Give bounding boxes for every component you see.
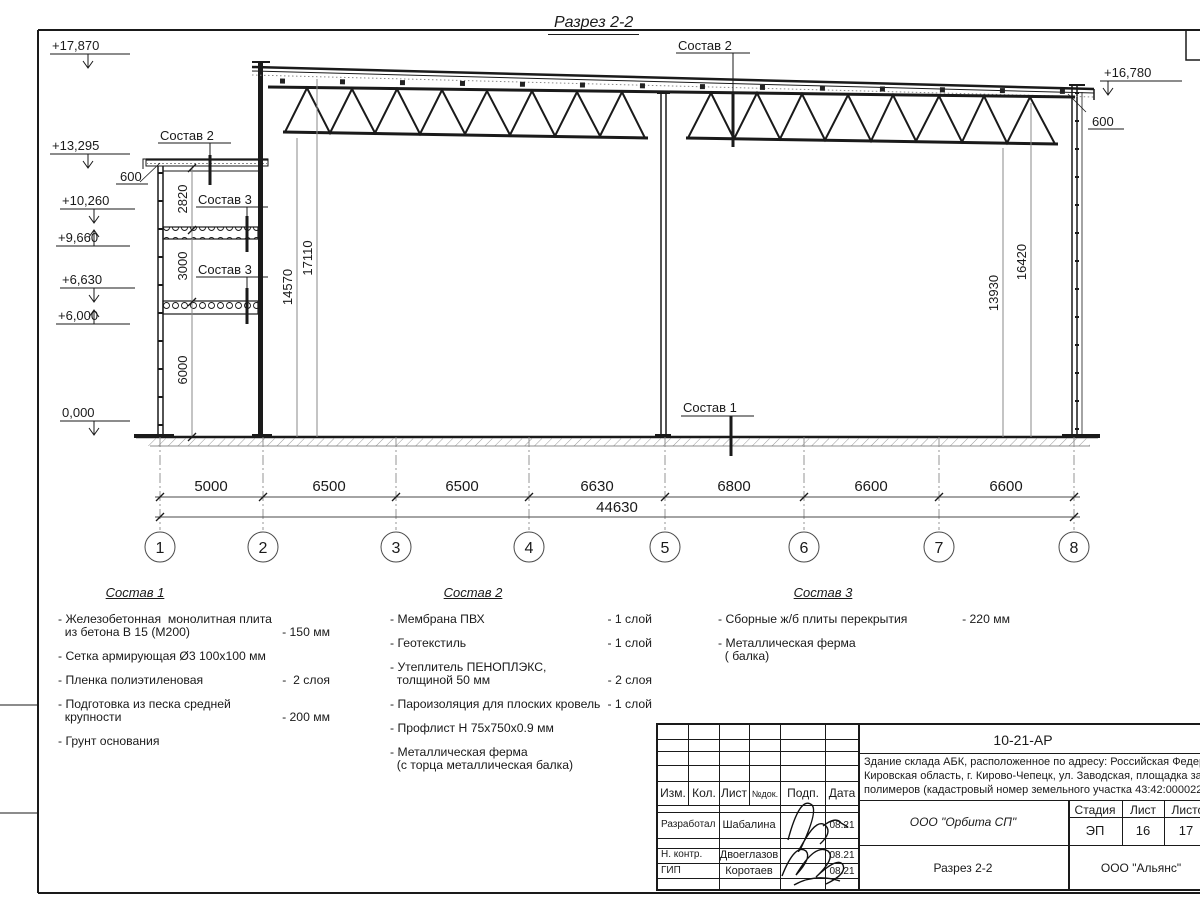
- dim-span-3-4: 6500: [445, 478, 478, 495]
- list-item: - Мембрана ПВХ- 1 слой: [390, 613, 652, 626]
- sheet-number: 16: [1136, 823, 1150, 838]
- annex-floor-slab-lower: [163, 301, 258, 314]
- sheets-label: Листов: [1172, 803, 1200, 817]
- dim-2820: 2820: [175, 185, 190, 214]
- list-item: - Сборные ж/б плиты перекрытия- 220 мм: [718, 613, 1010, 626]
- truss-webs-right: [688, 93, 1055, 144]
- title-block: Изм. Кол. Лист №док. Подп. Дата Разработ…: [656, 723, 1200, 891]
- grid2-wall: [258, 62, 263, 437]
- dim-600-right: 600: [1092, 114, 1114, 129]
- sostav-3-title: Состав 3: [758, 586, 888, 599]
- dim-600-left: 600: [120, 169, 142, 184]
- elevation-0000: 0,000: [60, 405, 130, 435]
- elevation-6000: +6,000: [56, 308, 130, 324]
- svg-text:+17,870: +17,870: [52, 38, 99, 53]
- svg-text:Состав 1: Состав 1: [683, 400, 737, 415]
- elevation-10260: +10,260: [60, 193, 135, 223]
- list-item: - Железобетонная монолитная плита из бет…: [58, 613, 330, 639]
- grid-axis-7: 7: [935, 540, 944, 557]
- annex-floor-slab-upper: [163, 227, 258, 239]
- truss-webs-left: [285, 88, 645, 138]
- drawing-sheet: +17,870 +13,295 +10,260 +9,660 +6,630 +6…: [0, 0, 1200, 900]
- svg-text:+13,295: +13,295: [52, 138, 99, 153]
- sheets-total: 17: [1179, 823, 1193, 838]
- sostav-3-list: Состав 3 - Сборные ж/б плиты перекрытия-…: [718, 586, 1010, 674]
- name-razrabotal: Шабалина: [722, 819, 775, 831]
- leader-slab-upper-sostav3: Состав 3: [196, 192, 268, 252]
- dim-total: 44630: [596, 499, 638, 516]
- stage-value: ЭП: [1086, 823, 1105, 838]
- leader-annex-sostav2: Состав 2: [158, 128, 231, 185]
- sostav-2-title: Состав 2: [408, 586, 538, 599]
- doc-number: 10-21-АР: [993, 732, 1052, 748]
- role-razrabotal: Разработал: [661, 819, 715, 830]
- grid-axis-5: 5: [661, 540, 670, 557]
- elevation-16780: +16,780: [1100, 65, 1182, 95]
- list-item: - Металлическая ферма ( балка): [718, 637, 1010, 663]
- col-izm: Изм.: [660, 786, 686, 800]
- grid-axis-3: 3: [392, 540, 401, 557]
- dim-span-4-5: 6630: [580, 478, 613, 495]
- svg-text:0,000: 0,000: [62, 405, 95, 420]
- floor-slab: [134, 434, 1100, 446]
- sostav-1-title: Состав 1: [70, 586, 200, 599]
- grid-bubbles: 1 2 3 4 5 6 7 8: [145, 532, 1089, 562]
- project-address-line2: Кировская область, г. Кирово-Чепецк, ул.…: [864, 770, 1200, 782]
- grid-axis-2: 2: [259, 540, 268, 557]
- svg-text:+6,630: +6,630: [62, 272, 102, 287]
- dim-span-7-8: 6600: [989, 478, 1022, 495]
- grid-axis-4: 4: [525, 540, 534, 557]
- list-item: - Пленка полиэтиленовая- 2 слоя: [58, 674, 330, 687]
- dim-span-5-6: 6800: [717, 478, 750, 495]
- role-nkontr: Н. контр.: [661, 849, 702, 860]
- sostav-1-list: Состав 1 - Железобетонная монолитная пли…: [58, 586, 330, 759]
- grid-axis-8: 8: [1070, 540, 1079, 557]
- col-list: Лист: [721, 786, 747, 800]
- col-kol: Кол.: [692, 786, 716, 800]
- sostav-2-list: Состав 2 - Мембрана ПВХ- 1 слой - Геотек…: [390, 586, 652, 783]
- grid-extension-lines: [160, 437, 1074, 530]
- col-data: Дата: [829, 786, 856, 800]
- svg-text:Состав 2: Состав 2: [160, 128, 214, 143]
- svg-text:Состав 2: Состав 2: [678, 38, 732, 53]
- col-ndok: №док.: [752, 789, 778, 799]
- date-razrabotal: 08.21: [829, 820, 854, 831]
- list-item: - Геотекстиль- 1 слой: [390, 637, 652, 650]
- list-item: - Подготовка из песка средней крупности-…: [58, 698, 330, 724]
- grid-axis-6: 6: [800, 540, 809, 557]
- dim-span-6-7: 6600: [854, 478, 887, 495]
- dimension-chain: 5000 6500 6500 6630 6800 6600 6600 44630: [155, 478, 1080, 521]
- date-gip: 08.21: [829, 866, 854, 877]
- project-address-line3: полимеров (кадастровый номер земельного …: [864, 784, 1200, 796]
- date-nkontr: 08.21: [829, 850, 854, 861]
- frame-corner-box: [1186, 30, 1200, 60]
- list-item: - Профлист Н 75х750х0.9 мм: [390, 722, 652, 735]
- dim-13930: 13930: [986, 275, 1001, 311]
- left-footing: [134, 434, 174, 438]
- grid-axis-1: 1: [156, 540, 165, 557]
- dim-6000: 6000: [175, 356, 190, 385]
- sheet-label: Лист: [1130, 803, 1156, 817]
- svg-text:+6,000: +6,000: [58, 308, 98, 323]
- role-gip: ГИП: [661, 865, 681, 876]
- svg-text:+16,780: +16,780: [1104, 65, 1151, 80]
- list-item: - Сетка армирующая Ø3 100х100 мм: [58, 650, 330, 663]
- truss-top-chord: [268, 87, 1075, 97]
- leader-slab-lower-sostav3: Состав 3: [196, 262, 268, 324]
- leader-labels: Состав 2 Состав 2 Состав 3 Состав 3 Сост…: [158, 38, 754, 456]
- leader-floor-sostav1: Состав 1: [681, 400, 754, 456]
- dim-14570: 14570: [280, 269, 295, 305]
- svg-text:Состав 3: Состав 3: [198, 262, 252, 277]
- dim-span-1-2: 5000: [194, 478, 227, 495]
- elevation-9660: +9,660: [56, 230, 130, 246]
- elevation-13295: +13,295: [50, 138, 130, 168]
- dim-3000: 3000: [175, 252, 190, 281]
- list-item: - Металлическая ферма (с торца металличе…: [390, 746, 652, 772]
- name-nkontr: Двоеглазов: [720, 849, 778, 861]
- roof-truss: [268, 87, 1075, 144]
- col-podp: Подп.: [787, 786, 819, 800]
- svg-text:+10,260: +10,260: [62, 193, 109, 208]
- dim-17110: 17110: [300, 240, 315, 275]
- svg-text:Состав 3: Состав 3: [198, 192, 252, 207]
- page-title: Разрез 2-2: [548, 14, 639, 35]
- list-item: - Грунт основания: [58, 735, 330, 748]
- dim-16420: 16420: [1014, 244, 1029, 280]
- name-gip: Коротаев: [725, 865, 773, 877]
- hall-structure: [252, 62, 1085, 438]
- dim-span-2-3: 6500: [312, 478, 345, 495]
- list-item: - Пароизоляция для плоских кровель- 1 сл…: [390, 698, 652, 711]
- stage-label: Стадия: [1075, 803, 1116, 817]
- list-item: - Утеплитель ПЕНОПЛЭКС, толщиной 50 мм- …: [390, 661, 652, 687]
- elevation-17870: +17,870: [50, 38, 130, 68]
- drawing-name: Разрез 2-2: [934, 861, 993, 875]
- project-address-line1: Здание склада АБК, расположенное по адре…: [864, 756, 1200, 768]
- right-footing: [1062, 434, 1100, 438]
- elevation-6630: +6,630: [60, 272, 135, 302]
- org-designer: ООО "Орбита СП": [910, 815, 1017, 829]
- org-client: ООО "Альянс": [1101, 861, 1181, 875]
